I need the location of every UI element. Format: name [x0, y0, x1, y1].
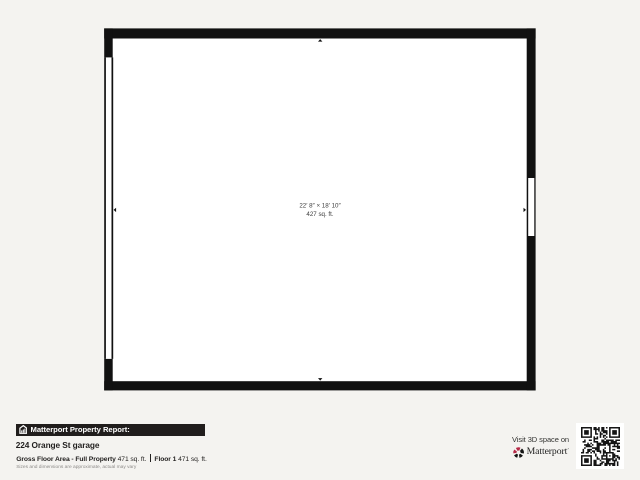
svg-text:427 sq. ft.: 427 sq. ft. — [306, 211, 333, 218]
svg-text:22′ 8″ × 18′ 10″: 22′ 8″ × 18′ 10″ — [299, 203, 341, 210]
